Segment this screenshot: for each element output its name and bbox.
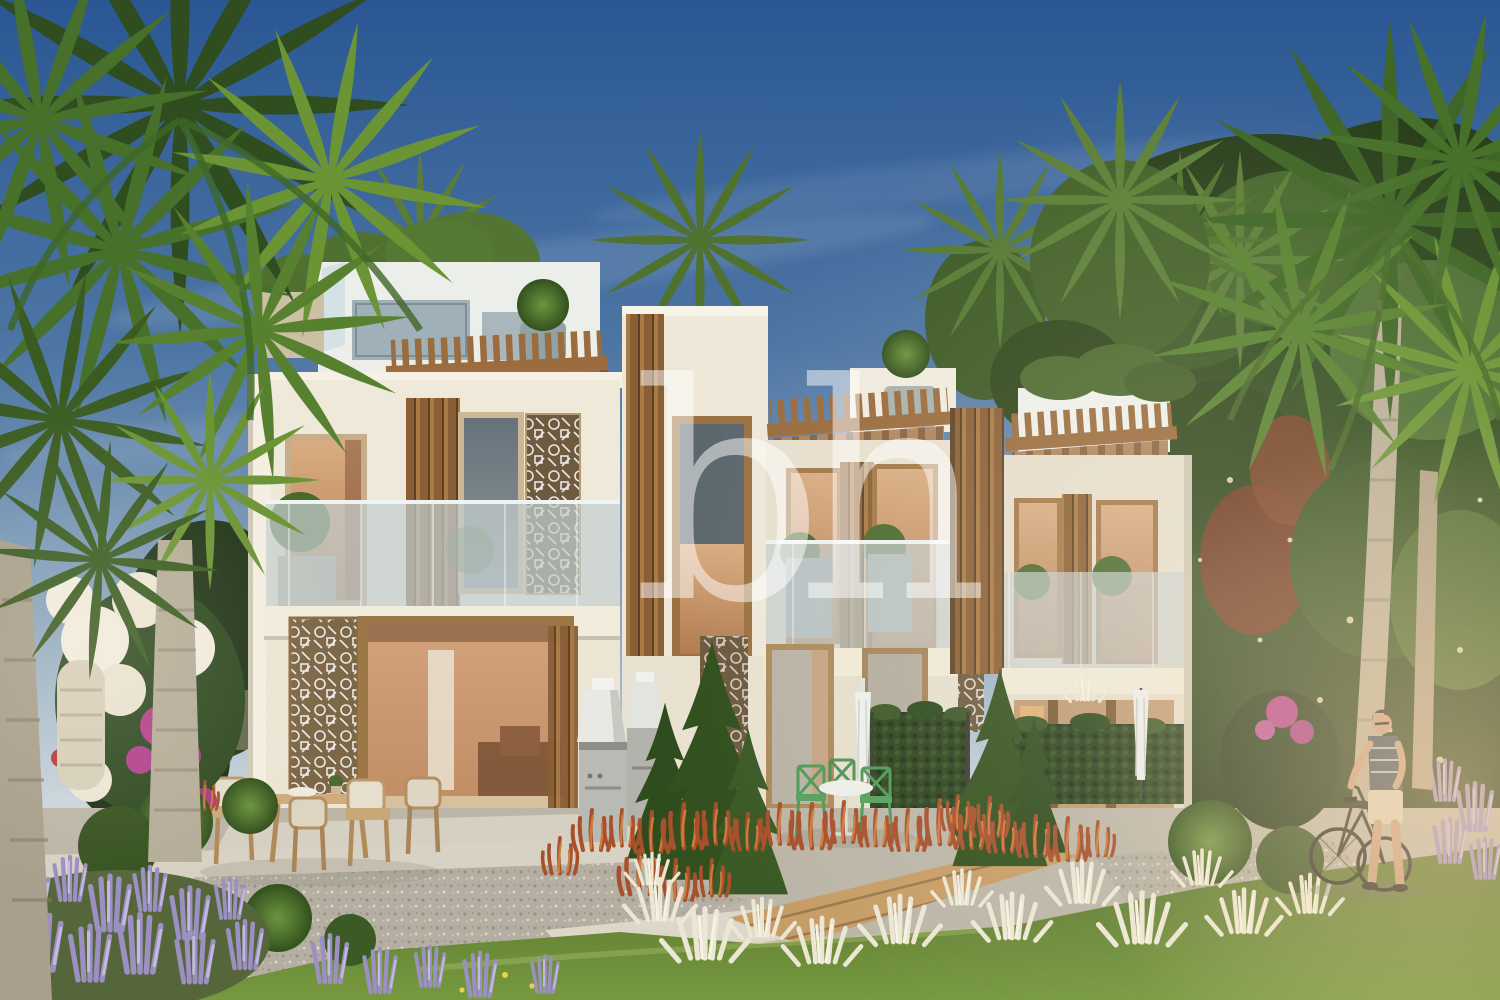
- watermark: bh: [632, 320, 984, 669]
- rooftop-topiary: [517, 279, 569, 331]
- unit-a-louvre-door: [548, 626, 578, 818]
- render-image: bh: [0, 0, 1500, 1000]
- unit-a-sliding-door: [358, 616, 574, 822]
